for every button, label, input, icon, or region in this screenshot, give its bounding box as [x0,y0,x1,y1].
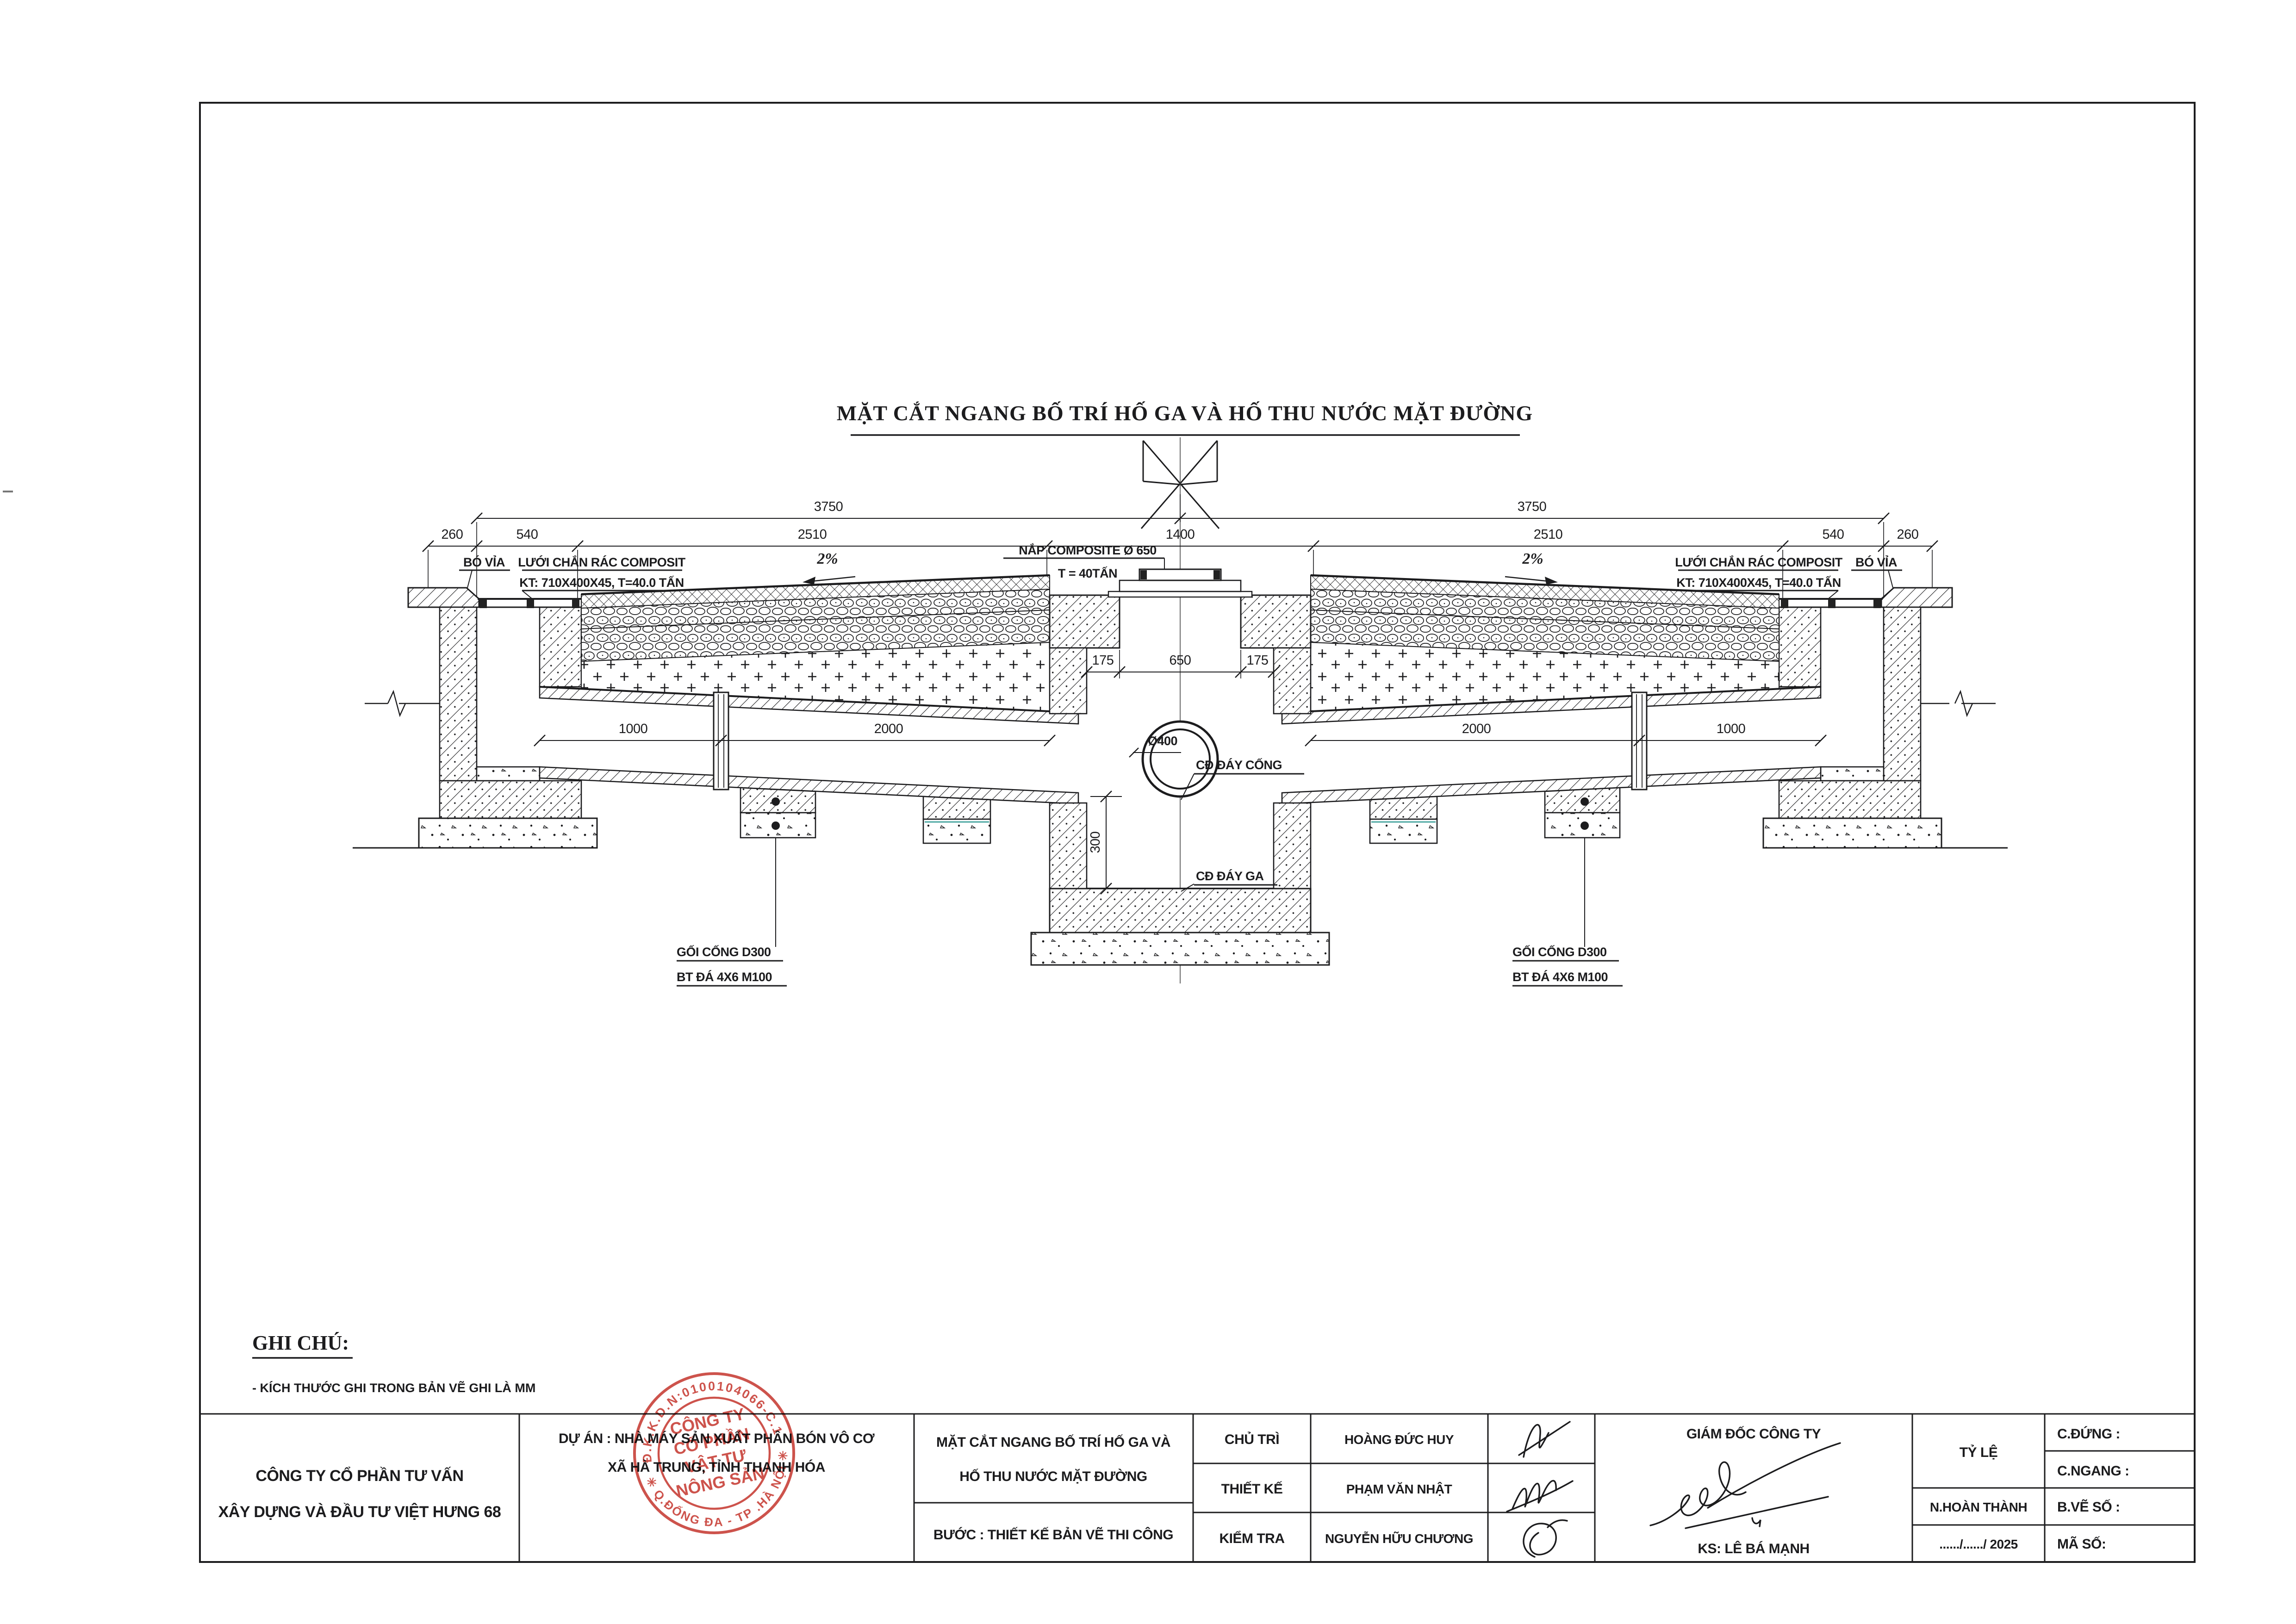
support-label-left-1: GỐI CỐNG D300 [677,944,771,959]
cover-assembly [1108,569,1252,597]
dimension-pipe-right: 2000 1000 [1305,722,1826,746]
break-line-icon [365,691,440,716]
support-label-right-1: GỐI CỐNG D300 [1512,944,1607,959]
dimension-pipe-left: 1000 2000 [534,722,1055,746]
dim-2510-left: 2510 [798,527,827,542]
pipe-support-blocks-left: GỐI CỐNG D300 BT ĐÁ 4X6 M100 [677,788,990,986]
svg-text:2%: 2% [1522,550,1543,567]
role-label-1: CHỦ TRÌ [1225,1431,1279,1447]
role-name-3: NGUYỄN HỮU CHƯƠNG [1325,1531,1473,1546]
dim-2510-right: 2510 [1534,527,1563,542]
dim-2000-left: 2000 [874,722,903,736]
company-line1: CÔNG TY CỔ PHẦN TƯ VẤN [255,1467,463,1485]
scale-label: TỶ LỆ [1960,1444,1998,1460]
director-title: GIÁM ĐỐC CÔNG TY [1686,1426,1821,1442]
director-name: KS: LÊ BÁ MẠNH [1698,1541,1809,1556]
svg-text:KT: 710X400X45, T=40.0 TẤN: KT: 710X400X45, T=40.0 TẤN [519,575,684,590]
svg-text:T = 40TẤN: T = 40TẤN [1058,566,1117,580]
dim-650: 650 [1170,653,1191,668]
pipe-support-blocks-right: GỐI CỐNG D300 BT ĐÁ 4X6 M100 [1370,788,1623,986]
svg-text:LƯỚI CHẮN RÁC COMPOSIT: LƯỚI CHẮN RÁC COMPOSIT [1675,555,1842,569]
company-line2: XÂY DỰNG VÀ ĐẦU TƯ VIỆT HƯNG 68 [218,1503,501,1521]
design-stage: BƯỚC : THIẾT KẾ BẢN VẼ THI CÔNG [933,1527,1173,1543]
role-name-2: PHẠM VĂN NHẬT [1346,1482,1452,1496]
drawing-sheet: MẶT CẮT NGANG BỐ TRÍ HỐ GA VÀ HỐ THU NƯỚ… [0,0,2296,1624]
dim-175-right: 175 [1247,653,1269,668]
dim-540-left: 540 [516,527,538,542]
dim-2000-right: 2000 [1462,722,1491,736]
company-seal-stamp: Đ.K.K.D.N:0100104066-C.1 ✳ Q.ĐỐNG ĐA - T… [620,1359,809,1548]
drawing-title: MẶT CẮT NGANG BỐ TRÍ HỐ GA VÀ HỐ THU NƯỚ… [837,401,1533,435]
svg-text:2%: 2% [816,550,838,567]
dim-3750-left: 3750 [814,499,843,514]
notes-block: GHI CHÚ: - KÍCH THƯỚC GHI TRONG BẢN VẼ G… [252,1332,535,1395]
notes-heading: GHI CHÚ: [252,1332,349,1354]
field-b-ve-so: B.VẼ SỐ : [2057,1499,2120,1515]
field-c-ngang: C.NGANG : [2057,1463,2129,1479]
field-c-dung: C.ĐỨNG : [2057,1426,2120,1442]
slope-right: 2% [1505,550,1558,585]
signature-chu-tri [1519,1422,1570,1457]
field-ma-so: MÃ SỐ: [2057,1536,2106,1552]
curb-callout-left: BÓ VỈA [459,554,510,588]
grate-frame [1779,598,1883,608]
road-layers-left [581,575,1050,711]
svg-text:KT: 710X400X45, T=40.0 TẤN: KT: 710X400X45, T=40.0 TẤN [1676,575,1841,590]
dim-300: 300 [1088,832,1103,853]
dim-540-right: 540 [1823,527,1844,542]
signatures [1507,1422,1840,1557]
grate-frame [478,598,581,608]
invert-pipe-label: CĐ ĐÁY CỐNG [1196,757,1282,772]
title-block: CÔNG TY CỔ PHẦN TƯ VẤN XÂY DỰNG VÀ ĐẦU T… [200,1414,2195,1562]
notes-item: - KÍCH THƯỚC GHI TRONG BẢN VẼ GHI LÀ MM [252,1380,535,1395]
signature-thiet-ke [1507,1481,1573,1512]
slope-arrow-right-icon [1545,577,1558,585]
left-catch-basin [353,598,597,848]
invert-manhole-label: CĐ ĐÁY GA [1196,869,1264,883]
right-catch-basin [1763,598,2008,848]
completion-label: N.HOÀN THÀNH [1930,1500,2027,1514]
break-line-icon [1921,691,1996,716]
slope-arrow-left-icon [803,577,815,585]
drawing-name-line2: HỐ THU NƯỚC MẶT ĐƯỜNG [959,1468,1147,1484]
date-field: ....../....../ 2025 [1939,1537,2017,1551]
signature-director [1650,1443,1840,1528]
page-title: MẶT CẮT NGANG BỐ TRÍ HỐ GA VÀ HỐ THU NƯỚ… [837,401,1533,425]
signature-kiem-tra [1524,1520,1567,1557]
svg-text:LƯỚI CHẮN RÁC COMPOSIT: LƯỚI CHẮN RÁC COMPOSIT [518,555,685,569]
dim-260-right: 260 [1897,527,1919,542]
pipe-dia-label: Ø400 [1148,734,1177,748]
dim-1400: 1400 [1166,527,1195,542]
role-name-1: HOÀNG ĐỨC HUY [1344,1432,1454,1447]
svg-text:BÓ VỈA: BÓ VỈA [1855,554,1897,569]
curb-callout-right: BÓ VỈA [1851,554,1902,588]
role-label-2: THIẾT KẾ [1221,1481,1283,1497]
road-layers-right [1311,575,1779,711]
support-label-right-2: BT ĐÁ 4X6 M100 [1512,970,1608,984]
svg-text:NẮP COMPOSITE Ø 650: NẮP COMPOSITE Ø 650 [1019,543,1157,557]
dimension-depth-300: 300 [1088,791,1122,894]
dim-1000-right: 1000 [1717,722,1746,736]
drawing-name-line1: MẶT CẮT NGANG BỐ TRÍ HỐ GA VÀ [936,1434,1170,1450]
slope-left: 2% [803,550,855,585]
role-label-3: KIỂM TRA [1220,1531,1285,1546]
dim-3750-right: 3750 [1518,499,1547,514]
svg-text:BÓ VỈA: BÓ VỈA [463,554,505,569]
dim-1000-left: 1000 [619,722,648,736]
support-label-left-2: BT ĐÁ 4X6 M100 [677,970,772,984]
dim-260-left: 260 [442,527,463,542]
dim-175-left: 175 [1092,653,1114,668]
